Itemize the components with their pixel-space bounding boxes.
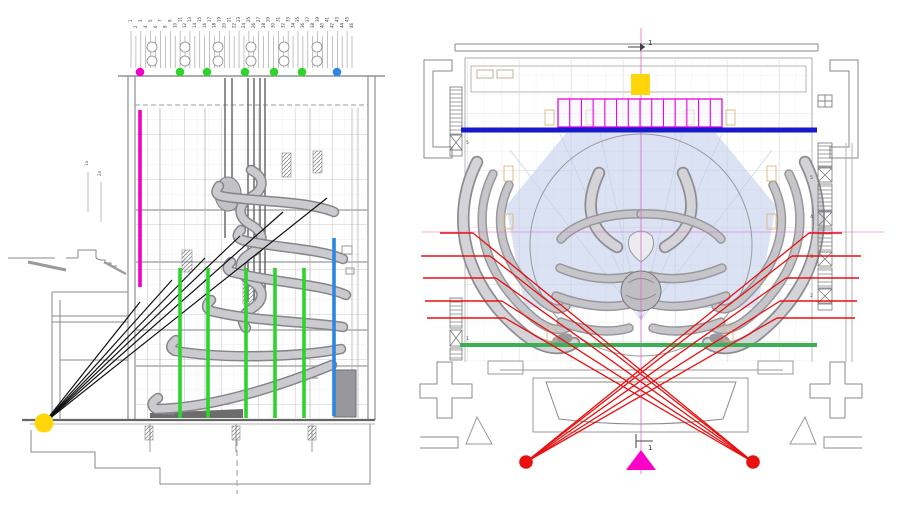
ladder-label: 5 bbox=[466, 140, 469, 146]
red-dot-marker bbox=[746, 455, 760, 469]
green-line-marker bbox=[460, 343, 817, 347]
magenta-triangle-marker bbox=[626, 450, 656, 470]
ladder-label: 5 bbox=[810, 175, 813, 181]
ladder-label: 4 bbox=[810, 214, 813, 220]
architectural-drawing-canvas: 1234567891011121314151617181920212223242… bbox=[0, 0, 900, 506]
red-dot-marker bbox=[519, 455, 533, 469]
plan-drawing: 11543251 bbox=[0, 0, 900, 506]
ladder-label: 3 bbox=[810, 254, 813, 260]
ladder-label: 2 bbox=[810, 293, 813, 299]
yellow-square-marker bbox=[631, 74, 650, 95]
section-marker-bottom-label: 1 bbox=[648, 444, 652, 452]
ladder-label: 1 bbox=[466, 336, 469, 342]
section-marker-top-label: 1 bbox=[648, 39, 652, 47]
blue-line-marker bbox=[461, 128, 817, 133]
